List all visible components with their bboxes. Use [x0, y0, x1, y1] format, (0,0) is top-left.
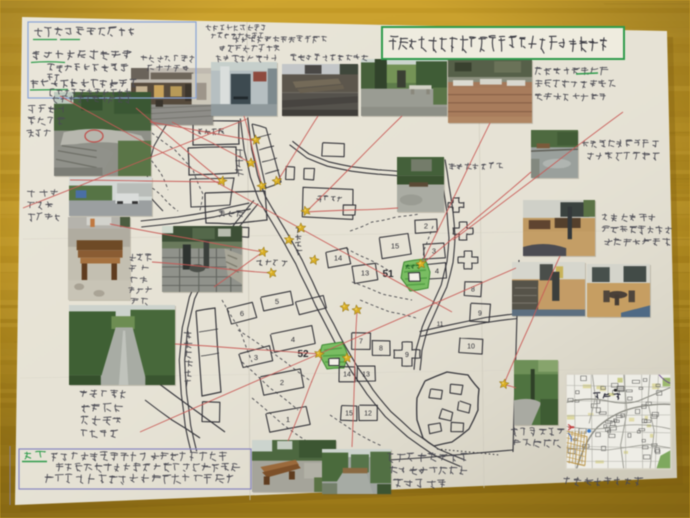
svg-text:15: 15 — [345, 411, 353, 418]
svg-text:4: 4 — [291, 335, 295, 344]
svg-text:3: 3 — [254, 353, 258, 362]
svg-text:52: 52 — [297, 349, 309, 360]
svg-text:14: 14 — [334, 254, 342, 263]
svg-text:13: 13 — [362, 372, 370, 379]
svg-text:9: 9 — [478, 311, 482, 318]
svg-text:10: 10 — [467, 344, 475, 351]
svg-text:1: 1 — [286, 415, 290, 424]
svg-text:9: 9 — [405, 352, 409, 359]
svg-text:14: 14 — [343, 372, 351, 379]
svg-text:7: 7 — [359, 339, 363, 346]
svg-text:15: 15 — [391, 242, 399, 251]
svg-text:2: 2 — [424, 222, 428, 231]
svg-text:8: 8 — [379, 346, 383, 353]
svg-text:5: 5 — [275, 297, 279, 306]
svg-text:13: 13 — [361, 269, 369, 278]
svg-text:11: 11 — [437, 321, 444, 328]
svg-text:6: 6 — [240, 309, 244, 318]
svg-text:12: 12 — [364, 411, 372, 418]
svg-text:4: 4 — [435, 267, 439, 276]
svg-text:2: 2 — [280, 378, 284, 387]
